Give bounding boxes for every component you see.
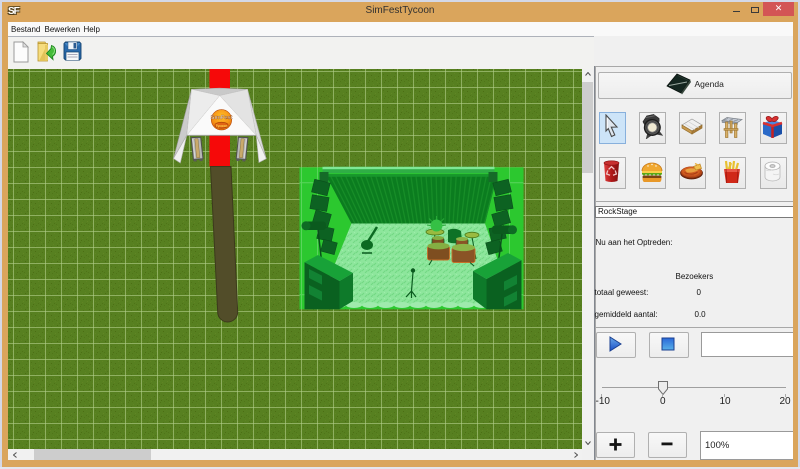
svg-text:SımFest: SımFest [210, 115, 232, 121]
svg-text:Tycoon: Tycoon [215, 124, 227, 128]
